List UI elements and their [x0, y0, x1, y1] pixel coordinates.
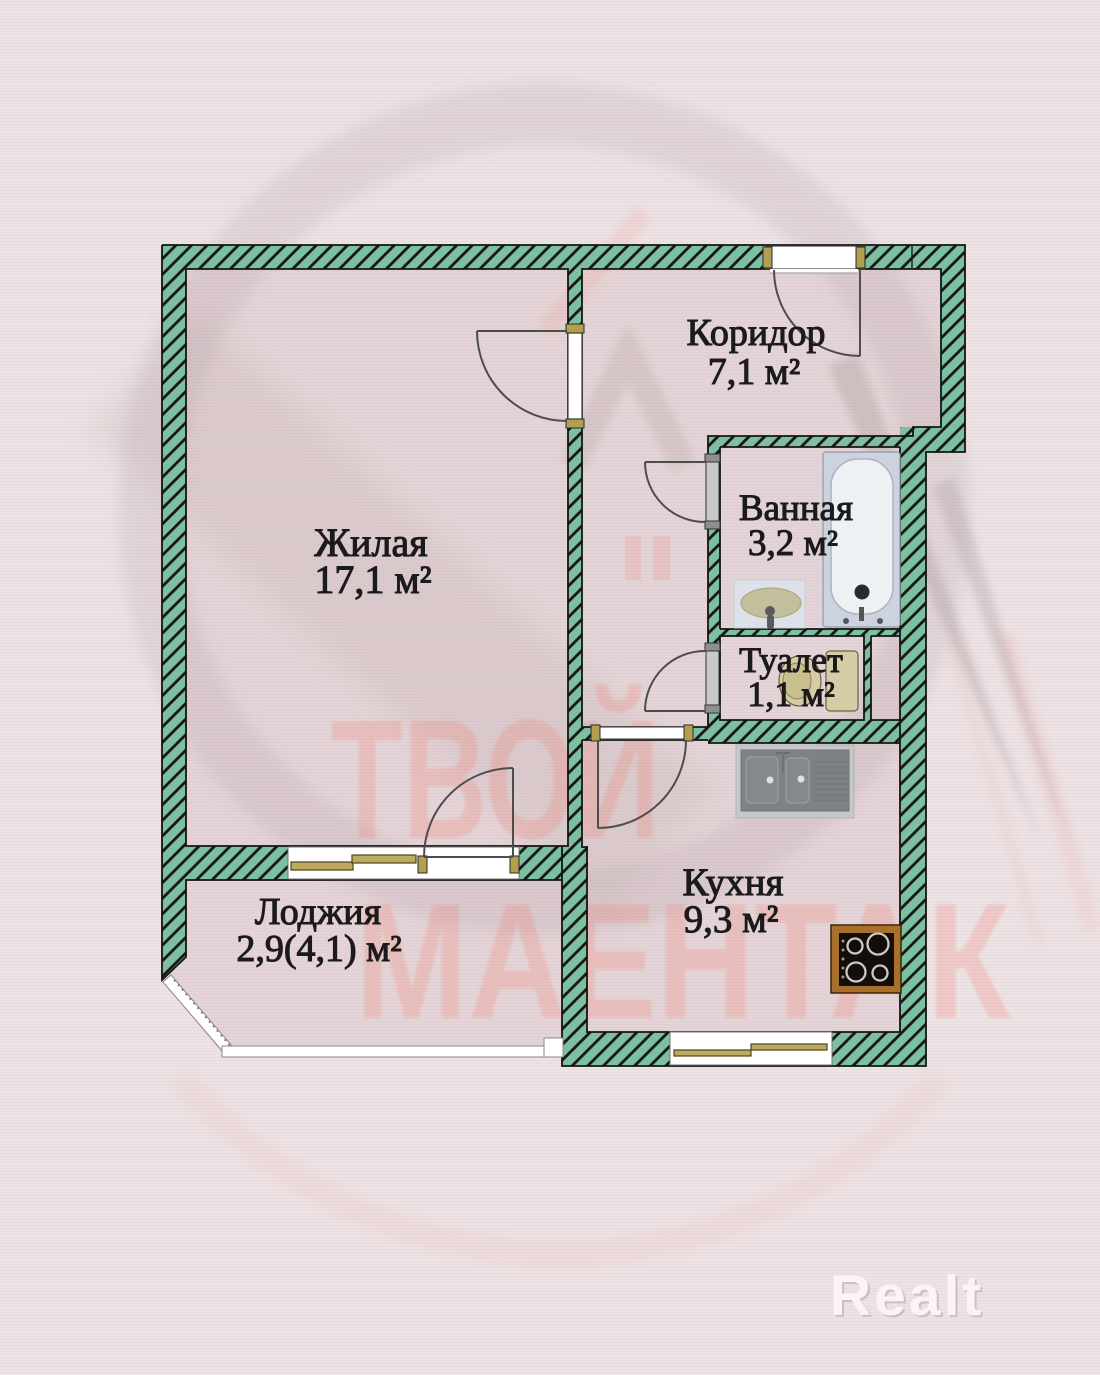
svg-text:3,2 м²: 3,2 м²: [748, 523, 838, 564]
svg-text:1,1 м²: 1,1 м²: [747, 674, 835, 714]
svg-text:Коридор: Коридор: [686, 312, 825, 354]
svg-text:Лоджия: Лоджия: [255, 891, 381, 933]
svg-text:9,3 м²: 9,3 м²: [684, 898, 779, 941]
svg-text:17,1 м²: 17,1 м²: [314, 557, 431, 602]
svg-text:7,1 м²: 7,1 м²: [708, 351, 800, 393]
svg-text:2,9(4,1) м²: 2,9(4,1) м²: [236, 928, 401, 970]
svg-text:Realt: Realt: [830, 1264, 984, 1328]
